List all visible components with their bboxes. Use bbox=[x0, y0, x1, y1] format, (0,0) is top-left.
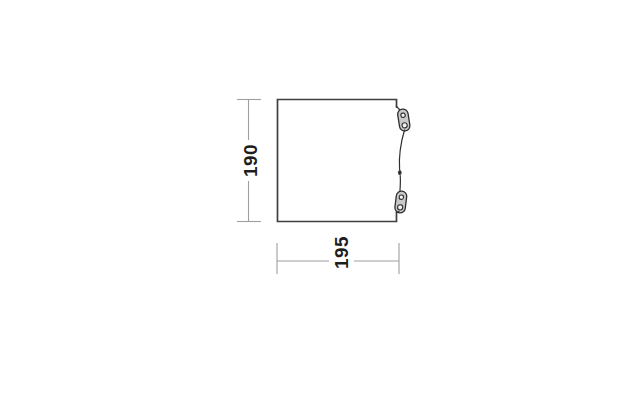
guyline-tensioner-top-icon bbox=[397, 108, 411, 131]
diagram-canvas: 190 195 bbox=[0, 0, 640, 400]
width-dimension-label: 195 bbox=[331, 236, 352, 269]
tensioner-hole bbox=[399, 195, 404, 200]
dimension-drawing: 190 195 bbox=[0, 0, 640, 400]
guyline-knot bbox=[398, 170, 402, 175]
guyline-rope-upper bbox=[399, 130, 404, 170]
height-dimension-label: 190 bbox=[240, 144, 261, 177]
guyline-assembly bbox=[394, 107, 410, 214]
tensioner-hole bbox=[401, 113, 406, 118]
tensioner-hole bbox=[397, 204, 403, 210]
tensioner-hole bbox=[402, 122, 408, 128]
guyline-tensioner-bottom-icon bbox=[394, 190, 407, 213]
panel-outline bbox=[278, 100, 397, 222]
